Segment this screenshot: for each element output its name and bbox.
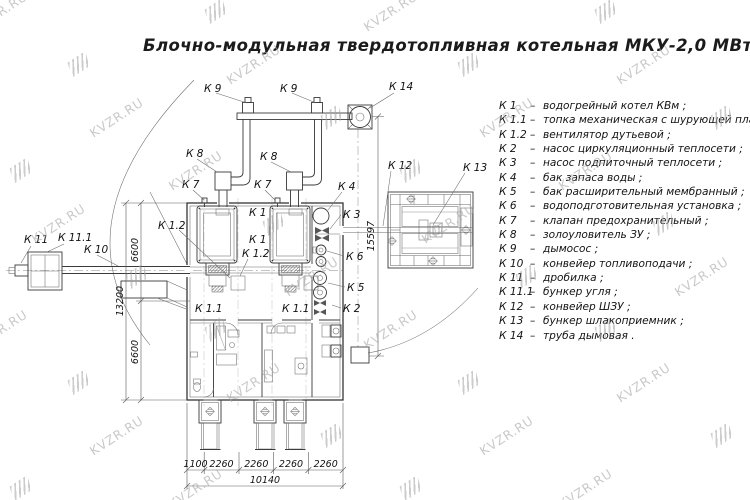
- slag-bunker-k13: [419, 220, 442, 240]
- label-k1-1-left: К 1.1: [195, 303, 223, 315]
- watermark-logo-icon: [711, 422, 733, 449]
- dim-6600-upper: 6600: [130, 238, 141, 262]
- entrance-stair-3: [284, 400, 306, 450]
- legend-item-code: К 12: [499, 300, 530, 314]
- dimension-lines: 1100 2260 2260 2260 2260 10140 6600 1320…: [115, 114, 384, 490]
- legend-item-code: К 14: [499, 329, 530, 343]
- ash-collector-k8-right: [287, 119, 322, 207]
- legend-item-dash: –: [530, 156, 543, 170]
- legend-item-dash: –: [530, 199, 543, 213]
- water-treatment-k6: [313, 245, 326, 267]
- label-k13: К 13: [463, 162, 487, 174]
- label-k1-2-center: К 1.2: [242, 248, 270, 260]
- legend-item-code: К 1.2: [499, 128, 530, 142]
- smoke-exhauster-k9-left: [243, 98, 254, 114]
- entrance-stair-1: [199, 400, 221, 450]
- legend-item-dash: –: [530, 99, 543, 113]
- legend-item-dash: –: [530, 113, 543, 127]
- ash-collector-k8-left: [215, 119, 250, 207]
- legend-item-К1: К 1–водогрейный котел КВм ;: [499, 99, 750, 113]
- coal-bunker-k11-1: [28, 252, 62, 290]
- legend-item-desc: водоподготовительная установка ;: [543, 199, 741, 213]
- fuel-feed-line: [9, 252, 311, 309]
- legend-item-К8: К 8–золоуловитель ЗУ ;: [499, 228, 750, 242]
- label-k14: К 14: [389, 81, 413, 93]
- legend-item-К2: К 2–насос циркуляционный теплосети ;: [499, 142, 750, 156]
- legend-item-desc: дымосос ;: [543, 242, 598, 256]
- legend-item-dash: –: [530, 171, 543, 185]
- legend-item-code: К 1: [499, 99, 530, 113]
- equipment-labels: К 9 К 9 К 14 К 8 К 8 К 7 К 7 К 4 К 12 К …: [21, 81, 487, 315]
- dim-1100: 1100: [183, 459, 207, 470]
- legend-item-К1.2: К 1.2–вентилятор дутьевой ;: [499, 128, 750, 142]
- legend-item-К11: К 11–дробилка ;: [499, 271, 750, 285]
- legend-item-desc: бункер шлакоприемник ;: [543, 314, 684, 328]
- label-k6: К 6: [346, 251, 364, 263]
- legend-item-К1.1: К 1.1–топка механическая с шурующей план…: [499, 113, 750, 127]
- legend-item-К13: К 13–бункер шлакоприемник ;: [499, 314, 750, 328]
- label-k9-right: К 9: [280, 83, 298, 95]
- legend-item-desc: конвейер топливоподачи ;: [543, 257, 692, 271]
- horizontal-flue-duct: [237, 113, 352, 120]
- legend-item-dash: –: [530, 228, 543, 242]
- legend-item-desc: дробилка ;: [543, 271, 604, 285]
- dim-6600-lower: 6600: [130, 340, 141, 364]
- label-k10: К 10: [84, 244, 108, 256]
- legend-item-desc: бак запаса воды ;: [543, 171, 642, 185]
- label-k8-left: К 8: [186, 148, 204, 160]
- legend-item-К12: К 12–конвейер ШЗУ ;: [499, 300, 750, 314]
- legend-item-code: К 6: [499, 199, 530, 213]
- legend-item-К10: К 10–конвейер топливоподачи ;: [499, 257, 750, 271]
- legend-item-dash: –: [530, 185, 543, 199]
- legend-item-dash: –: [530, 300, 543, 314]
- legend-item-desc: конвейер ШЗУ ;: [543, 300, 631, 314]
- legend-item-К6: К 6–водоподготовительная установка ;: [499, 199, 750, 213]
- smoke-exhauster-k9-right: [312, 98, 323, 114]
- legend-item-code: К 5: [499, 185, 530, 199]
- dim-10140: 10140: [250, 475, 280, 486]
- legend-item-dash: –: [530, 271, 543, 285]
- dim-2260-3: 2260: [279, 459, 303, 470]
- legend-item-code: К 1.1: [499, 113, 530, 127]
- label-k1-2-left: К 1.2: [158, 220, 186, 232]
- legend-item-desc: топка механическая с шурующей планкой ;: [543, 113, 750, 127]
- dim-15597: 15597: [366, 221, 377, 251]
- legend-item-desc: клапан предохранительный ;: [543, 214, 708, 228]
- legend-item-dash: –: [530, 329, 543, 343]
- legend-item-code: К 3: [499, 156, 530, 170]
- legend-item-desc: насос циркуляционный теплосети ;: [543, 142, 743, 156]
- label-k8-right: К 8: [260, 151, 278, 163]
- interior-fixtures: [191, 326, 308, 392]
- watermark-text: KVZR.RU: [614, 360, 673, 406]
- watermark-text: KVZR.RU: [556, 466, 615, 500]
- boiler-k1-right: [270, 198, 318, 292]
- label-k1-1-right: К 1.1: [282, 303, 310, 315]
- legend-item-dash: –: [530, 142, 543, 156]
- entrance-stair-2: [254, 400, 276, 450]
- legend-item-dash: –: [530, 257, 543, 271]
- legend-item-К5: К 5–бак расширительный мембранный ;: [499, 185, 750, 199]
- legend-item-К7: К 7–клапан предохранительный ;: [499, 214, 750, 228]
- label-k7-left: К 7: [182, 179, 200, 191]
- legend-item-dash: –: [530, 242, 543, 256]
- legend-item-code: К 11: [499, 271, 530, 285]
- plant-plan-drawing: 1100 2260 2260 2260 2260 10140 6600 1320…: [0, 0, 497, 500]
- label-k11: К 11: [24, 234, 48, 246]
- watermark-logo-icon: [595, 0, 617, 25]
- legend-item-code: К 8: [499, 228, 530, 242]
- legend-item-desc: золоуловитель ЗУ ;: [543, 228, 650, 242]
- label-k11-1: К 11.1: [58, 232, 92, 244]
- legend-item-К11.1: К 11.1–бункер угля ;: [499, 285, 750, 299]
- slag-conveyor-k12: [343, 228, 473, 233]
- legend-item-code: К 4: [499, 171, 530, 185]
- legend-item-dash: –: [530, 314, 543, 328]
- legend-item-code: К 13: [499, 314, 530, 328]
- legend-item-dash: –: [530, 128, 543, 142]
- legend-item-desc: труба дымовая .: [543, 329, 635, 343]
- drawing-title: Блочно-модульная твердотопливная котельн…: [143, 36, 723, 55]
- legend-item-К4: К 4–бак запаса воды ;: [499, 171, 750, 185]
- legend-item-dash: –: [530, 214, 543, 228]
- expansion-tanks-k5: [314, 272, 327, 300]
- label-k4: К 4: [338, 181, 355, 193]
- label-k1-lower: К 1: [249, 234, 266, 246]
- legend-item-code: К 11.1: [499, 285, 530, 299]
- label-k5: К 5: [347, 282, 365, 294]
- label-k9-left: К 9: [204, 83, 222, 95]
- water-tank-k4: [313, 208, 329, 224]
- equipment-column: [313, 208, 341, 357]
- label-k3: К 3: [343, 209, 360, 221]
- circulation-pumps-k2: [314, 300, 341, 357]
- legend-item-code: К 7: [499, 214, 530, 228]
- dim-2260-2: 2260: [244, 459, 268, 470]
- boiler-plant-drawing-sheet: Блочно-модульная твердотопливная котельн…: [0, 0, 750, 500]
- legend-item-desc: бункер угля ;: [543, 285, 618, 299]
- flue-connection-box: [351, 347, 369, 363]
- label-k2: К 2: [343, 303, 361, 315]
- label-k1-upper: К 1: [249, 207, 266, 219]
- legend-item-К14: К 14–труба дымовая .: [499, 329, 750, 343]
- legend-item-К3: К 3–насос подпиточный теплосети ;: [499, 156, 750, 170]
- legend-item-code: К 10: [499, 257, 530, 271]
- legend-item-К9: К 9–дымосос ;: [499, 242, 750, 256]
- legend-item-dash: –: [530, 285, 543, 299]
- legend-item-desc: вентилятор дутьевой ;: [543, 128, 671, 142]
- equipment-legend: К 1–водогрейный котел КВм ;К 1.1–топка м…: [499, 99, 750, 343]
- label-k7-right: К 7: [254, 179, 272, 191]
- legend-item-desc: водогрейный котел КВм ;: [543, 99, 686, 113]
- conveyor-gallery-ramp: [121, 281, 187, 309]
- legend-item-desc: насос подпиточный теплосети ;: [543, 156, 722, 170]
- label-k12: К 12: [388, 160, 412, 172]
- dim-2260-1: 2260: [209, 459, 233, 470]
- dim-13200: 13200: [115, 286, 126, 316]
- dim-2260-4: 2260: [314, 459, 338, 470]
- legend-item-desc: бак расширительный мембранный ;: [543, 185, 745, 199]
- legend-item-code: К 9: [499, 242, 530, 256]
- legend-item-code: К 2: [499, 142, 530, 156]
